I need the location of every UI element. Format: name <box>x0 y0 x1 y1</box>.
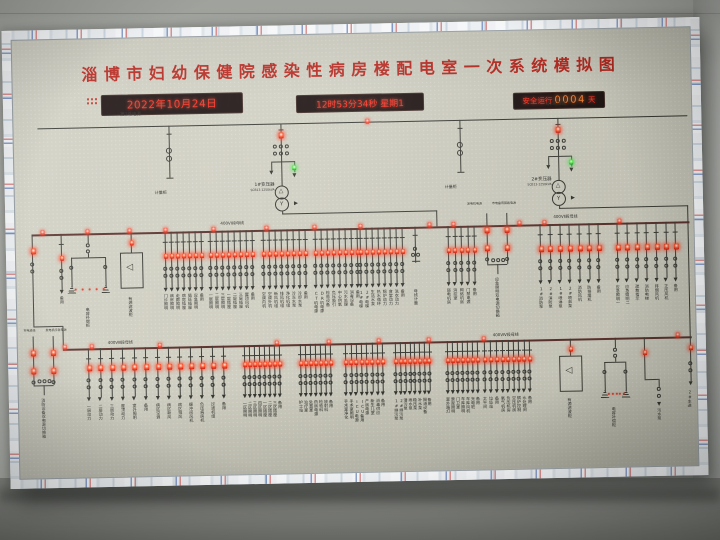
breaker-led <box>635 244 640 250</box>
feeder-line <box>300 344 302 393</box>
feeder-line <box>275 230 277 286</box>
breaker-led <box>548 246 553 252</box>
feeder-line <box>366 343 368 392</box>
ct-circle <box>451 378 455 382</box>
ct-circle <box>177 377 181 381</box>
feeder-label: 门诊照明 <box>163 294 168 310</box>
board-panel: 淄博市妇幼保健院感染性病房楼配电室一次系统模拟图 2022年10月24日 12时… <box>11 26 700 480</box>
feeder-line <box>330 344 332 393</box>
ct-circle <box>623 370 627 374</box>
ct-circle <box>343 263 347 267</box>
arrow-down-icon <box>221 395 225 399</box>
feeder-line <box>447 226 449 282</box>
feeder-line <box>228 231 230 287</box>
arrow-down-icon <box>269 171 273 175</box>
breaker-led <box>98 365 103 371</box>
ct-circle <box>393 372 397 376</box>
isolator-tick <box>364 353 369 354</box>
feeder-label: 值班插座 <box>187 293 192 309</box>
breaker-led <box>446 248 450 253</box>
feeder-label: 2#主进 <box>687 389 692 407</box>
arrow-down-icon <box>285 285 289 289</box>
ct-circle <box>47 379 51 383</box>
ct-circle <box>427 378 431 382</box>
feeder-line <box>484 340 486 389</box>
arrow-down-icon <box>688 381 692 385</box>
breaker-led <box>349 250 353 255</box>
ct-circle <box>587 265 591 269</box>
breaker-led <box>664 244 669 250</box>
breaker-led <box>495 357 499 362</box>
ct-circle <box>482 370 486 374</box>
ct-circle <box>86 378 90 382</box>
feeder-line <box>529 340 531 389</box>
ats2-source-a-label: 市电进线 <box>23 329 35 333</box>
feeder-label: 备用 <box>221 402 226 410</box>
isolator-tick <box>267 240 272 241</box>
ct-circle <box>664 257 668 261</box>
feeder-label: 弱电机房 <box>446 288 451 304</box>
feeder-line <box>350 228 352 284</box>
ct-circle <box>459 261 463 265</box>
ct-circle <box>556 139 560 143</box>
breaker-led <box>324 361 328 366</box>
ct-circle <box>155 377 159 381</box>
arrow-down-icon <box>242 394 246 398</box>
bus-section-led <box>40 230 44 235</box>
isolator-tick <box>343 238 348 239</box>
breaker-led <box>51 368 56 374</box>
feeder-label: 锅炉控制 <box>516 396 521 412</box>
bus-section-led <box>85 229 89 234</box>
ct-circle <box>471 378 475 382</box>
feeder-label: 手术室净化 <box>343 399 348 419</box>
arrow-down-icon <box>267 286 271 290</box>
ct-circle <box>354 380 358 384</box>
ct-circle <box>163 267 167 271</box>
arrow-down-icon <box>664 278 668 282</box>
ct-circle <box>501 377 505 381</box>
bus-section-led <box>127 228 131 233</box>
ct-circle <box>376 269 380 273</box>
cap-bar <box>604 362 625 363</box>
ct-circle <box>399 379 403 383</box>
ct-circle <box>175 267 179 271</box>
ct-circle <box>408 372 412 376</box>
breaker-led <box>459 248 463 253</box>
device-led <box>129 240 133 245</box>
feeder-line <box>171 232 173 288</box>
ct-circle <box>273 265 277 269</box>
bus-section-led <box>427 337 431 342</box>
arrow-down-icon <box>548 280 552 284</box>
ct-circle <box>109 378 113 382</box>
ct-circle <box>472 268 476 272</box>
isolator-tick <box>547 234 552 235</box>
ct-circle <box>511 370 515 374</box>
cap-led-dot <box>623 393 625 395</box>
isolator-tick <box>452 236 457 237</box>
feeder-line <box>263 230 265 286</box>
feeder-label: 氧气机房 <box>500 396 505 412</box>
feeder-line <box>183 231 185 287</box>
breaker-led <box>446 358 450 363</box>
breaker-led <box>489 357 493 362</box>
breaker-led <box>423 359 427 364</box>
feeder-label: 备用 <box>673 284 678 292</box>
isolator-tick <box>354 353 359 354</box>
breaker-led <box>250 252 254 257</box>
breaker-led <box>522 357 526 362</box>
ct-circle <box>388 262 392 266</box>
ct-circle <box>512 377 516 381</box>
ct-circle <box>98 385 102 389</box>
feeder-line <box>355 343 357 392</box>
arrow-down-icon <box>615 279 619 283</box>
arrow-down-icon <box>364 392 368 396</box>
ct-circle <box>657 394 661 398</box>
breaker-led <box>673 244 678 250</box>
arrow-down-icon <box>308 393 312 397</box>
arrow-down-icon <box>488 389 492 393</box>
feeder-label: 室外照明 <box>132 403 137 419</box>
isolator-tick <box>538 234 543 235</box>
arrow-down-icon <box>400 283 404 287</box>
feeder-line <box>145 347 147 396</box>
breaker-led <box>517 357 521 362</box>
breaker-led <box>208 253 212 258</box>
feeder-line <box>345 228 347 284</box>
feeder-line <box>244 345 246 394</box>
arrow-down-icon <box>261 286 265 290</box>
ct-circle <box>472 261 476 265</box>
arrow-down-icon <box>298 393 302 397</box>
bus-section-led <box>358 224 362 229</box>
breaker-led <box>587 245 592 251</box>
ct-circle <box>337 263 341 267</box>
breaker-led <box>199 253 203 258</box>
breaker-led <box>485 245 490 251</box>
ct-circle <box>262 375 266 379</box>
feeder-label: 2#消防泵 <box>548 286 553 308</box>
arrow-down-icon <box>349 284 353 288</box>
feeder-label: 门卫室 <box>455 397 460 409</box>
isolator-tick <box>120 358 125 359</box>
ct-circle <box>408 379 412 383</box>
ct-circle <box>132 377 136 381</box>
earth-switch-led <box>292 165 296 170</box>
breaker-led <box>476 358 480 363</box>
feeder-line <box>371 228 373 284</box>
bus-section-led <box>676 333 680 338</box>
feeder-line <box>523 340 525 389</box>
feeder-label: 护士站 <box>298 400 303 412</box>
feeder-line <box>356 228 358 284</box>
ct-circle <box>457 150 463 156</box>
breaker-led <box>413 359 417 364</box>
ct-circle <box>273 145 277 149</box>
arrow-down-icon <box>376 284 380 288</box>
ct-circle <box>427 372 431 376</box>
feeder-line <box>333 228 335 284</box>
ct-circle <box>417 372 421 376</box>
breaker-led <box>358 250 362 255</box>
cap-arm <box>604 362 606 392</box>
ct-circle <box>381 379 385 383</box>
bus-section-led <box>617 219 621 224</box>
arrow-down-icon <box>337 284 341 288</box>
ct-circle <box>37 379 41 383</box>
ct-circle <box>248 382 252 386</box>
ct-circle <box>465 371 469 375</box>
breaker-led <box>382 249 386 254</box>
feeder-line <box>269 230 271 286</box>
arrow-down-icon <box>644 278 648 282</box>
feeder-label: 屋顶动力 <box>120 404 125 420</box>
breaker-led <box>329 360 333 365</box>
cap-arm <box>105 257 107 287</box>
ct-circle <box>257 375 261 379</box>
ct-circle <box>644 264 648 268</box>
ct-circle <box>500 370 504 374</box>
isolator-tick <box>370 353 375 354</box>
ct-circle <box>344 380 348 384</box>
feeder-line <box>513 340 515 389</box>
feeder-label: 排风机组 <box>279 291 284 307</box>
t2-lv-run <box>559 205 688 209</box>
isolator-tick <box>634 232 639 233</box>
breaker-led <box>451 358 455 363</box>
feeder-label: 生活水泵 <box>370 290 375 306</box>
ct-circle <box>308 374 312 378</box>
earth-switch-led <box>569 160 573 165</box>
arrow-down-icon <box>252 394 256 398</box>
feeder-line <box>383 227 385 283</box>
ct-circle <box>199 273 203 277</box>
t1-lv-run <box>282 210 437 214</box>
ct-circle <box>476 378 480 382</box>
ct-circle <box>654 257 658 261</box>
ct-circle <box>488 370 492 374</box>
breaker-led <box>175 254 179 259</box>
breaker-led <box>299 361 303 366</box>
feeder-line <box>210 231 212 287</box>
arrow-down-icon <box>273 286 277 290</box>
breaker-led <box>319 251 323 256</box>
cap-led-dot <box>612 393 614 395</box>
breaker-led <box>615 245 620 251</box>
feeder-label: 中心供氧 <box>337 290 342 306</box>
ct-circle <box>644 257 648 261</box>
isolator-tick <box>380 352 385 353</box>
isolator-tick <box>376 237 381 238</box>
right-riser <box>687 205 691 336</box>
branch-bar <box>271 161 295 162</box>
breaker-led <box>214 253 218 258</box>
ct-circle <box>303 271 307 275</box>
arrow-down-icon <box>375 392 379 396</box>
ct-circle <box>166 148 172 154</box>
breaker-led <box>325 251 329 256</box>
breaker-led <box>268 362 272 367</box>
pt-feeder-line <box>414 227 416 263</box>
ct-circle <box>238 272 242 276</box>
arrow-down-icon <box>155 396 159 400</box>
breaker-led <box>501 357 505 362</box>
ct-circle <box>303 374 307 378</box>
breaker-led <box>577 245 582 251</box>
arrow-down-icon <box>188 395 192 399</box>
isolator-tick <box>358 238 363 239</box>
feeder-label: 一层照明 <box>208 293 213 309</box>
feeder-line <box>222 231 224 287</box>
breaker-led <box>258 362 262 367</box>
isolator-tick <box>472 236 477 237</box>
bus-section-led <box>451 222 455 227</box>
feeder-label: 1#喷淋泵 <box>558 286 563 308</box>
isolator-tick <box>596 233 601 234</box>
feeder-label: 1#消防泵 <box>538 286 543 308</box>
arrow-down-icon <box>382 283 386 287</box>
breaker-led <box>232 252 236 257</box>
feeder-line <box>269 345 271 394</box>
arrow-down-icon <box>277 394 281 398</box>
isolator-tick <box>166 357 171 358</box>
ct-circle <box>187 273 191 277</box>
breaker-led <box>471 358 475 363</box>
feeder-line <box>99 348 101 397</box>
isolator-tick <box>488 350 493 351</box>
ct-circle <box>120 378 124 382</box>
arrow-down-icon <box>453 282 457 286</box>
feeder-line <box>327 229 329 285</box>
isolator-tick <box>313 239 318 240</box>
arrow-down-icon <box>187 287 191 291</box>
feeder-line <box>400 342 402 391</box>
arrow-down-icon <box>388 283 392 287</box>
ct-circle <box>261 265 265 269</box>
arrow-down-icon <box>238 286 242 290</box>
isolator-tick <box>163 242 168 243</box>
wire <box>548 157 549 165</box>
arrow-down-icon <box>569 168 573 172</box>
feeder-label: 净化机组 <box>285 291 290 307</box>
ct-circle <box>244 272 248 276</box>
breaker-led <box>376 249 380 254</box>
breaker-led <box>309 361 313 366</box>
ct-circle <box>577 265 581 269</box>
ats2-output-label: 消防设备双电源切换箱 <box>41 398 46 438</box>
breaker-led <box>279 251 283 256</box>
ct-circle <box>527 369 531 373</box>
isolator-tick <box>175 242 180 243</box>
isolator-tick <box>654 232 659 233</box>
arrow-down-icon <box>166 396 170 400</box>
breaker-led <box>263 362 267 367</box>
isolator-tick <box>328 353 333 354</box>
arrow-down-icon <box>199 287 203 291</box>
ct-circle <box>358 270 362 274</box>
feeder-line <box>249 345 251 394</box>
arrow-down-icon <box>635 278 639 282</box>
ct-circle <box>455 371 459 375</box>
breaker-led <box>381 359 385 364</box>
ct-circle <box>528 376 532 380</box>
wye-glyph: Y <box>557 196 560 202</box>
ct-circle <box>285 151 289 155</box>
ct-circle <box>485 257 489 261</box>
isolator-tick <box>279 129 284 130</box>
ct-circle <box>86 243 90 247</box>
feeder-label: 应急照明 <box>193 293 198 309</box>
filter-1-label: 有源滤波柜 <box>128 296 133 316</box>
ct-circle <box>250 272 254 276</box>
isolator-tick <box>226 240 231 241</box>
ct-circle <box>423 379 427 383</box>
feeder-line <box>361 343 363 392</box>
ct-circle <box>214 266 218 270</box>
feeder-label: 热水循环 <box>376 289 381 305</box>
bus-section-led <box>158 343 162 348</box>
isolator-tick <box>527 349 532 350</box>
ct-circle <box>376 380 380 384</box>
feeder-line <box>165 232 167 288</box>
feeder-label: 洗衣动力 <box>394 289 399 305</box>
isolator-tick <box>615 233 620 234</box>
isolator-tick <box>208 241 213 242</box>
feeder-line <box>518 340 520 389</box>
ct-circle <box>232 272 236 276</box>
cap-led-dot <box>89 288 91 290</box>
breaker-led <box>31 368 36 374</box>
breaker-led <box>181 253 185 258</box>
feeder-line <box>281 229 283 285</box>
breaker-led <box>200 363 205 369</box>
arrow-down-icon <box>460 390 464 394</box>
breaker-led <box>505 245 510 251</box>
ct-circle <box>30 269 34 273</box>
ct-circle <box>166 156 172 162</box>
breaker-led <box>505 227 510 233</box>
ct-circle <box>211 383 215 387</box>
ct-circle <box>324 381 328 385</box>
cap-led-dot <box>82 288 84 290</box>
ct-circle <box>200 383 204 387</box>
isolator-tick <box>303 239 308 240</box>
feeder-label: 2#喷淋泵 <box>567 286 572 308</box>
ct-circle <box>189 383 193 387</box>
ct-circle <box>272 375 276 379</box>
ct-circle <box>364 263 368 267</box>
feeder-line <box>389 227 391 283</box>
arrow-down-icon <box>313 285 317 289</box>
breaker-led <box>418 359 422 364</box>
breaker-led <box>567 246 572 252</box>
breaker-led <box>453 248 457 253</box>
ct-circle <box>297 271 301 275</box>
arrow-down-icon <box>398 391 402 395</box>
arrow-down-icon <box>412 391 416 395</box>
breaker-led <box>291 251 295 256</box>
breaker-led <box>360 360 364 365</box>
feeder-label: 治疗室 <box>303 400 308 412</box>
ct-circle <box>51 380 55 384</box>
ct-circle <box>325 271 329 275</box>
arrow-down-icon <box>522 389 526 393</box>
ct-circle <box>285 144 289 148</box>
isolator-tick <box>143 357 148 358</box>
arrow-down-icon <box>527 388 531 392</box>
